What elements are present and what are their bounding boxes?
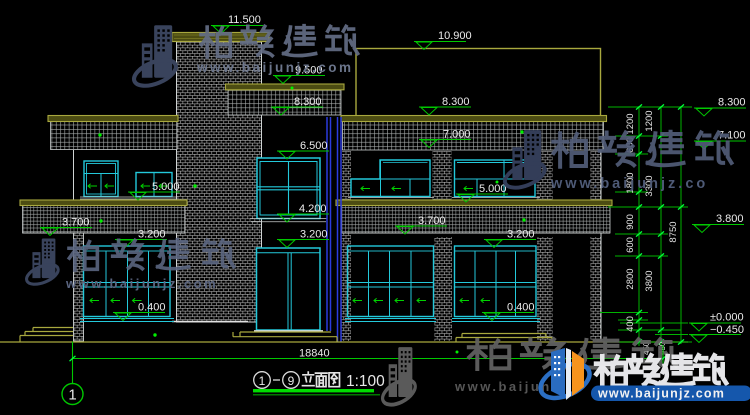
svg-text:±0.000: ±0.000 [710,312,744,324]
svg-text:3.200: 3.200 [138,229,166,241]
svg-text:900: 900 [625,214,636,230]
svg-text:3.700: 3.700 [418,215,446,227]
svg-text:6.500: 6.500 [300,140,328,152]
svg-text:−0.450: −0.450 [710,324,744,336]
svg-text:5.000: 5.000 [479,183,507,195]
svg-text:3.200: 3.200 [507,229,535,241]
svg-text:www.baijunjz.co: www.baijunjz.co [550,176,708,192]
svg-text:1: 1 [68,387,76,404]
svg-text:8750: 8750 [668,221,679,242]
svg-text:2800: 2800 [625,268,636,289]
svg-text:1:100: 1:100 [346,373,385,390]
svg-text:3.700: 3.700 [62,217,90,229]
svg-text:0.400: 0.400 [507,302,535,314]
svg-text:8.300: 8.300 [442,96,470,108]
svg-text:0.400: 0.400 [138,302,166,314]
svg-text:9: 9 [288,374,295,388]
svg-text:www.baijunjz.com: www.baijunjz.com [65,276,218,291]
svg-text:400: 400 [625,316,636,332]
svg-text:www.baijunjz.com: www.baijunjz.com [597,387,725,401]
svg-text:www.baijun: www.baijun [454,379,552,394]
svg-text:3800: 3800 [644,270,655,291]
svg-text:11.500: 11.500 [228,14,261,26]
svg-text:10.900: 10.900 [438,30,472,42]
svg-text:3.200: 3.200 [300,229,328,241]
svg-text:3.800: 3.800 [716,213,744,225]
svg-text:www.baijunjz.com: www.baijunjz.com [196,60,354,75]
svg-text:5.000: 5.000 [152,181,180,193]
svg-text:8.300: 8.300 [294,96,322,108]
svg-text:7.000: 7.000 [443,129,471,141]
svg-text:8.300: 8.300 [718,97,746,109]
svg-text:600: 600 [625,237,636,253]
svg-text:1: 1 [259,374,266,388]
svg-text:18840: 18840 [299,348,330,360]
svg-text:4.200: 4.200 [299,203,327,215]
svg-text:1200: 1200 [644,110,655,131]
